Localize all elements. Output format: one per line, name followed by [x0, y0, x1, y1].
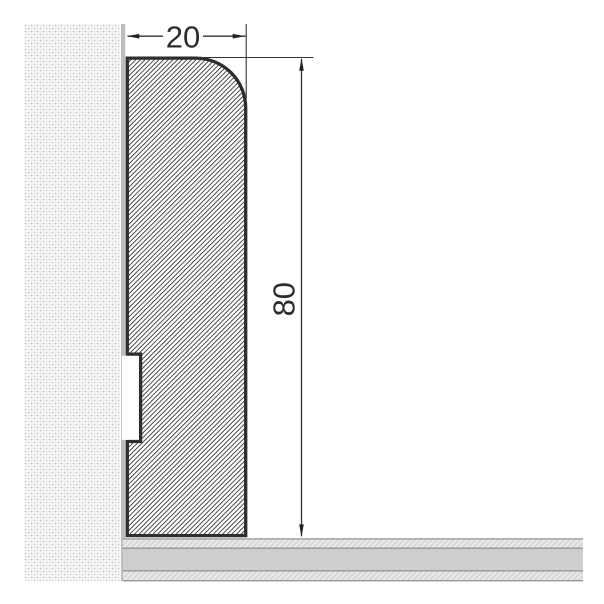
svg-text:20: 20	[166, 20, 200, 55]
svg-text:80: 80	[266, 282, 301, 316]
